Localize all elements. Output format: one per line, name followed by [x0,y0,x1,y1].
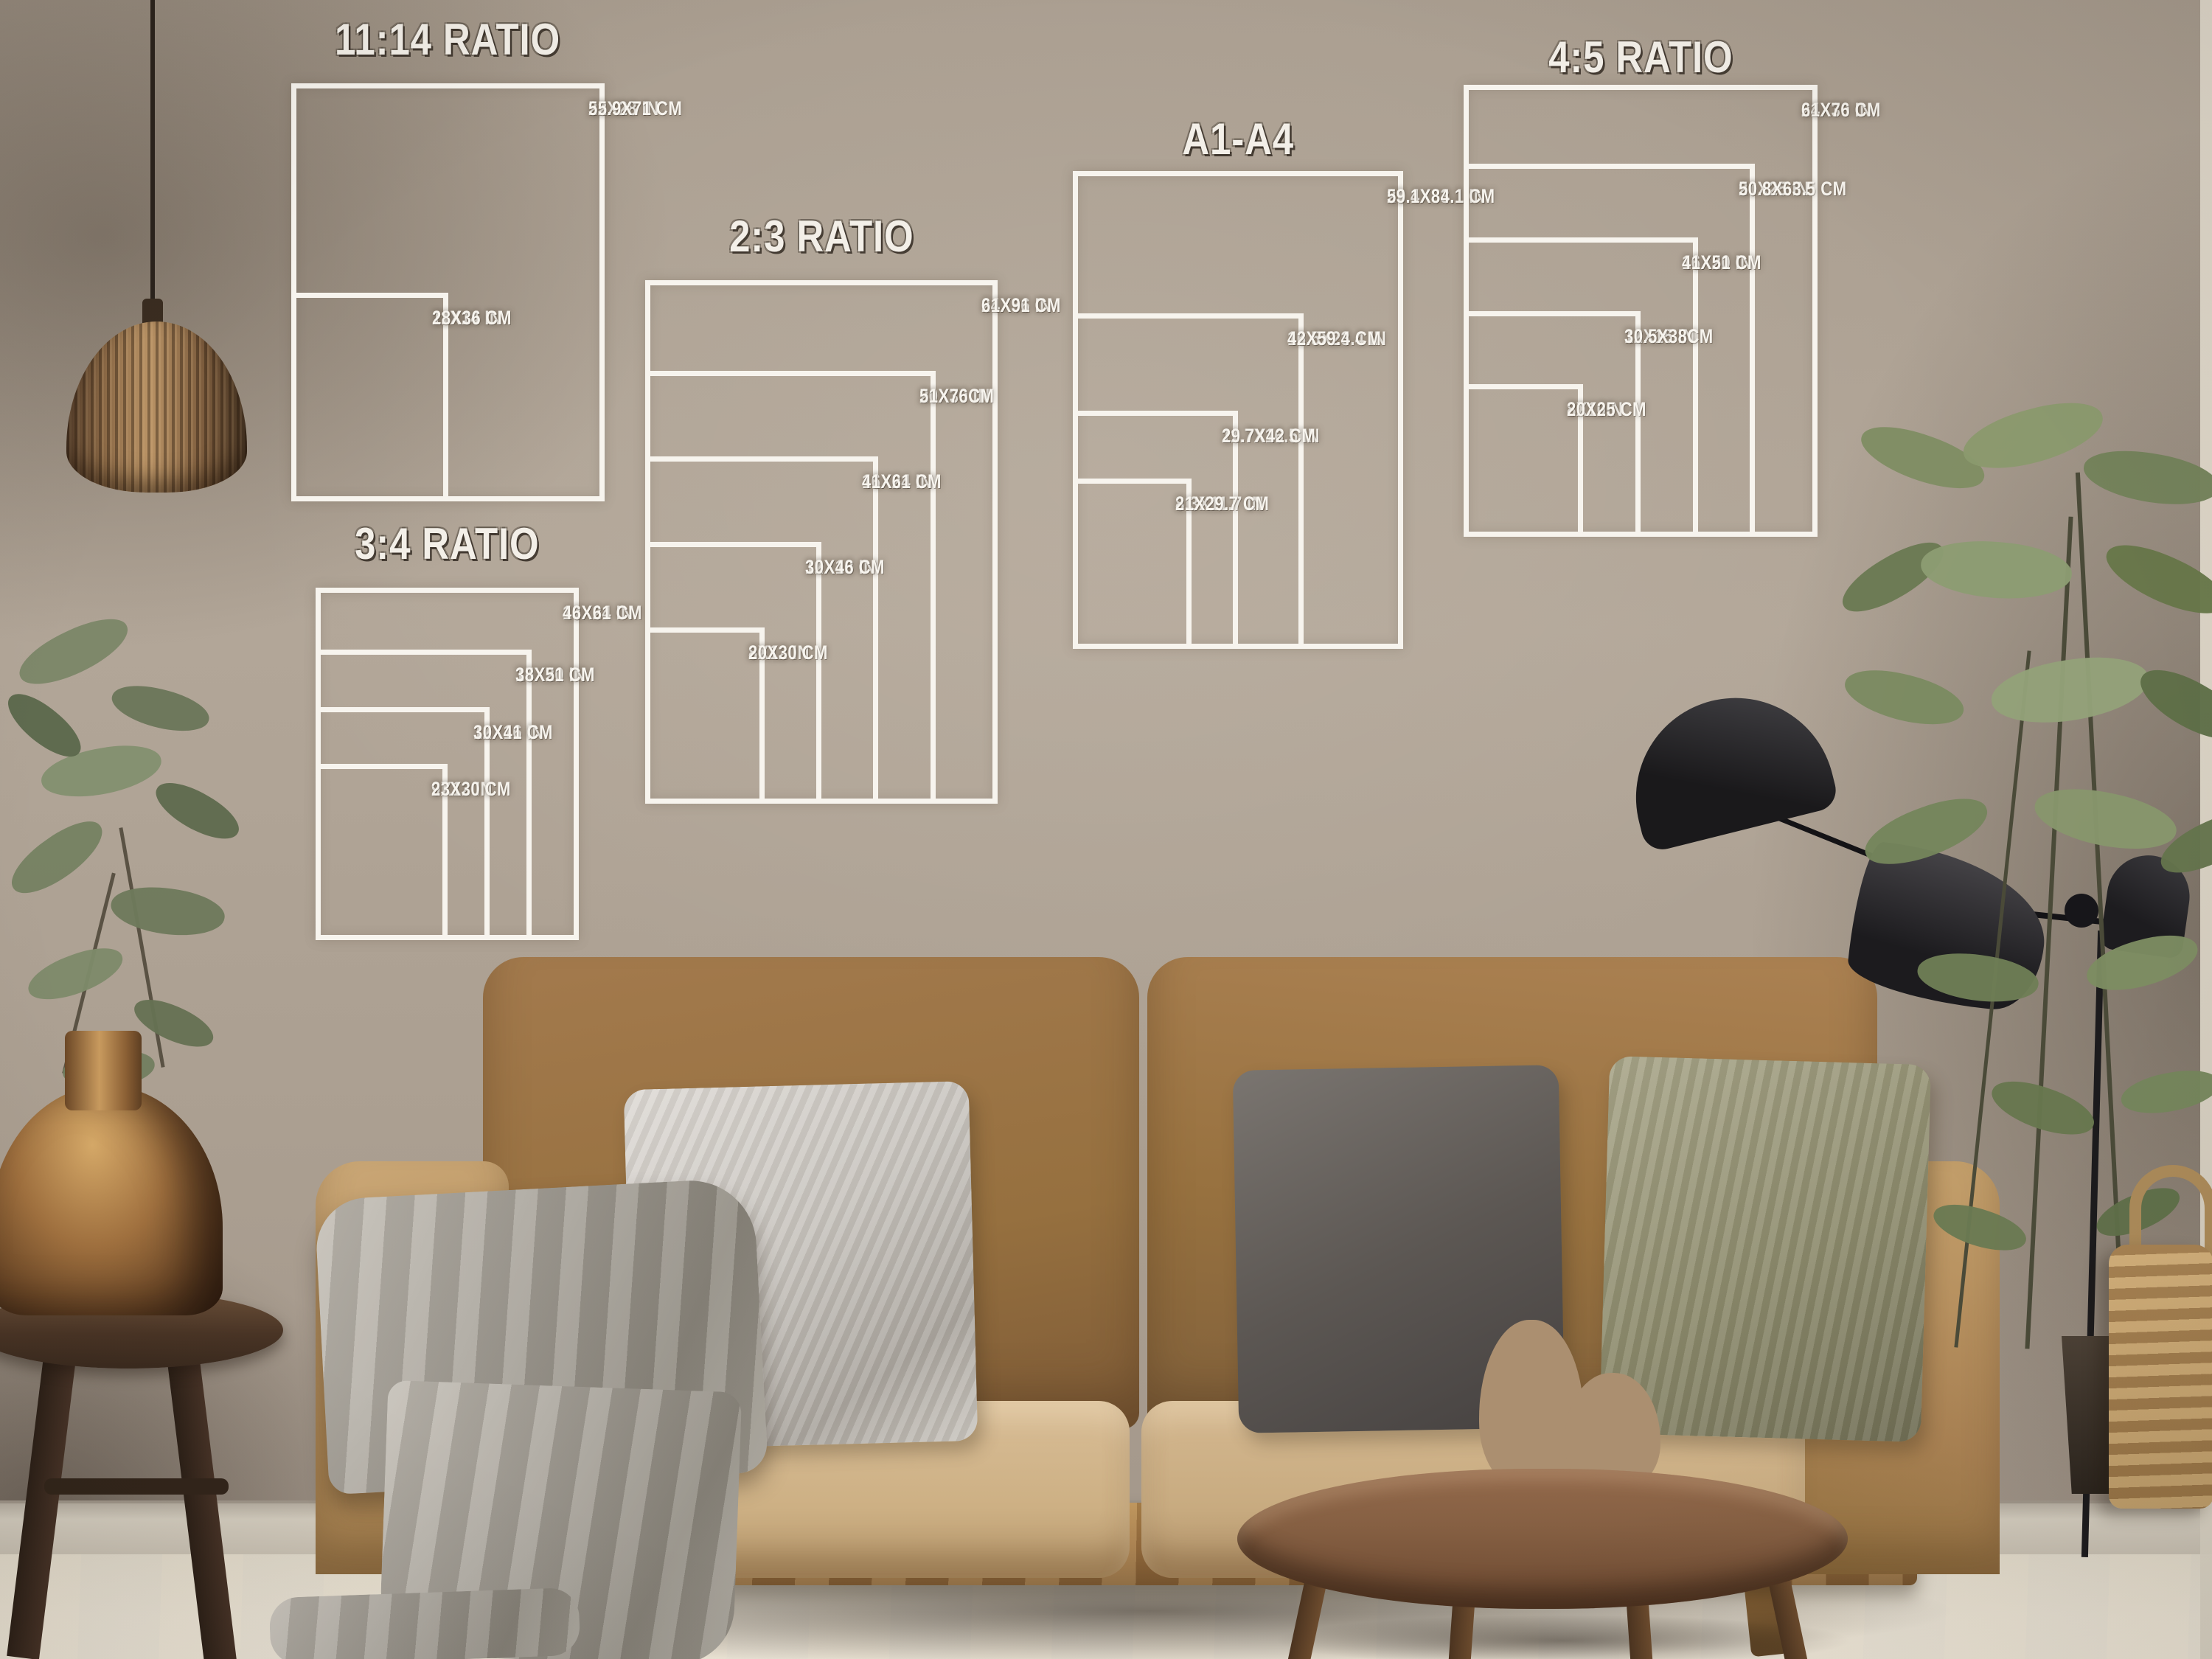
plant-leaf [1919,535,2074,605]
plant-leaf [22,939,129,1009]
plant-leaf [1987,649,2152,731]
plant-leaf [11,608,136,696]
pendant-lamp-cord [150,0,155,308]
rattan-pendant-lamp [66,321,247,493]
plant-leaf [128,990,220,1057]
size-chart-3-4-ratio: 3:4 RATIO 18X24 IN46X61 CM15X20 IN38X51 … [316,588,579,940]
chart-title-text: 2:3 RATIO [729,211,914,262]
plant-leaf [1854,414,1992,501]
coffee-table [1237,1469,1848,1609]
throw-blanket-tail [269,1587,581,1659]
floor-lamp-shade-small [2099,850,2195,959]
chart-title-text: 11:14 RATIO [335,14,560,65]
chart-title: 3:4 RATIO [321,518,574,569]
plant-leaf [2080,442,2212,513]
plant-leaf [108,677,214,740]
size-chart-a1-a4: A1-A4 23.4X33.1 IN59.1X84.1 CM16.5X23.4 … [1073,171,1403,649]
chart-title-text: 3:4 RATIO [355,518,539,569]
chart-title-text: 4:5 RATIO [1548,32,1733,83]
copper-vase-neck [65,1031,142,1110]
plant-leaf [108,881,227,942]
copper-vase [0,1085,223,1315]
wicker-basket [2109,1245,2212,1509]
side-stool-stretcher [44,1478,229,1495]
chart-title: A1-A4 [1078,114,1398,164]
size-rect: 8X12 IN20X30 CM [650,627,765,799]
chart-title: 11:14 RATIO [296,14,599,65]
plant-leaf [2098,532,2212,627]
plant-leaf [1,810,113,905]
size-rect: 8X10IN20X25 CM [1469,384,1583,532]
plant-leaf [1957,392,2110,480]
floor-lamp-hub [2065,894,2098,928]
size-chart-11-14-ratio: 11:14 RATIO 22X28 IN55.9X71 CM11X14 IN28… [291,83,605,501]
plant-leaf [2118,1065,2212,1120]
throw-pillow-green [1599,1056,1931,1442]
plant-leaf [148,772,246,850]
size-chart-4-5-ratio: 4:5 RATIO 24X30 IN61X76 CM20X25 IN50.8X6… [1464,85,1818,537]
plant-leaf [0,684,89,768]
living-room-size-guide-photo: 11:14 RATIO 22X28 IN55.9X71 CM11X14 IN28… [0,0,2212,1659]
size-rect: 9X12 IN23X30 CM [321,764,448,935]
size-rect: 11X14 IN28X36 CM [296,293,448,497]
plant-leaf [1833,531,1952,624]
chart-title: 4:5 RATIO [1469,32,1812,83]
plant-leaf [1840,660,1969,736]
size-chart-2-3-ratio: 2:3 RATIO 24X36 IN61X91 CM20X30 IN51X76C… [645,280,998,804]
chart-title: 2:3 RATIO [650,211,992,262]
size-rect: 8.3X11.7 IN21X29.7 CM [1078,479,1192,644]
chart-title-text: A1-A4 [1182,114,1294,164]
plant-leaf [38,738,165,804]
